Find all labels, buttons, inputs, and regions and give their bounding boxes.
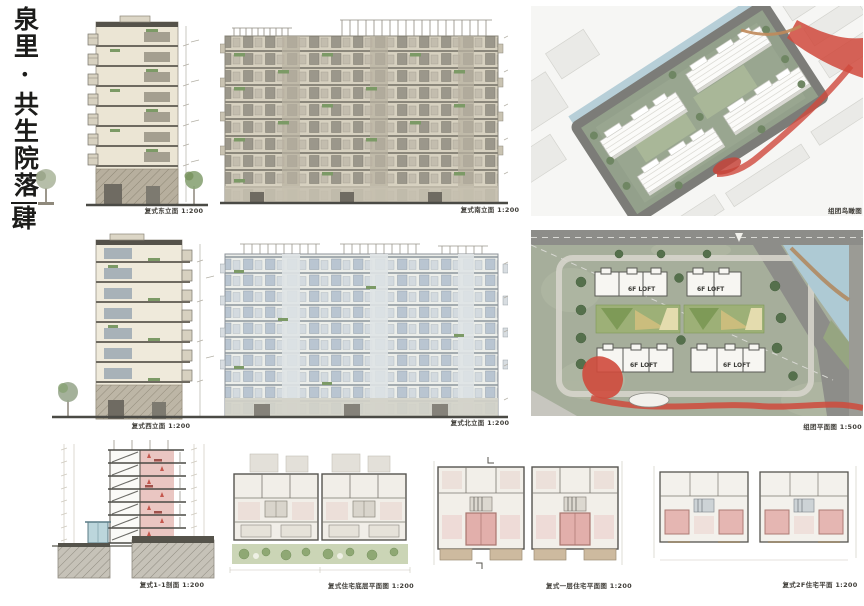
site-plan-panel: 6F LOFT 6F LOFT 6F LOFT 6F LOFT <box>531 230 863 416</box>
tree-icon <box>185 171 204 204</box>
plan-unit <box>438 467 524 560</box>
south-elevation-drawing <box>220 16 508 208</box>
roof-pergola <box>232 20 492 36</box>
plan-unit <box>760 472 848 542</box>
first-floor-plan-panel <box>430 455 626 577</box>
dimension-marks <box>230 567 410 573</box>
building-label: 6F LOFT <box>697 286 725 293</box>
ground-floor-plan-panel <box>228 452 412 578</box>
building-label: 6F LOFT <box>628 286 656 293</box>
second-floor-plan-drawing <box>648 462 862 572</box>
first-floor-plan-drawing <box>430 455 626 577</box>
building-facade <box>96 234 192 419</box>
foundation <box>52 536 214 578</box>
east-elevation-caption: 复式东立面 1:200 <box>114 205 234 215</box>
tree-icon <box>58 382 78 418</box>
roof-pergola <box>240 244 488 254</box>
site-plan-drawing: 6F LOFT 6F LOFT 6F LOFT 6F LOFT <box>531 230 863 416</box>
tree-icon <box>32 164 60 206</box>
birdseye-drawing <box>531 6 863 216</box>
board-title: 泉里·共生院落 肆 <box>6 6 42 246</box>
dimension-marks <box>504 36 508 174</box>
entrance-glass-box <box>85 522 111 543</box>
building-facade <box>220 254 508 417</box>
dimension-marks <box>197 244 214 416</box>
plan-unit <box>234 474 318 540</box>
section-caption: 复式1-1剖面 1:200 <box>112 579 232 589</box>
second-floor-plan-caption: 复式2F住宅平面 1:200 <box>760 579 864 589</box>
building-label: 6F LOFT <box>723 362 751 369</box>
west-elevation-drawing <box>52 232 220 424</box>
plan-unit <box>660 472 748 542</box>
north-elevation-panel <box>220 240 508 422</box>
presentation-board: 泉里·共生院落 肆 <box>0 0 864 606</box>
section-rooms <box>140 450 174 543</box>
building-facade <box>88 16 178 205</box>
building-facade <box>220 36 503 203</box>
birdseye-panel <box>531 6 863 216</box>
south-elevation-panel <box>220 16 508 208</box>
first-floor-plan-caption: 复式一层住宅平面图 1:200 <box>529 580 649 590</box>
courtyard-gardens <box>596 305 764 333</box>
second-floor-plan-panel <box>648 462 862 572</box>
garden-band <box>232 544 408 564</box>
section-drawing <box>52 438 224 584</box>
east-elevation-panel <box>86 14 208 210</box>
birdseye-caption: 组团鸟瞰图 <box>778 205 862 215</box>
site-plan-caption: 组团平面图 1:500 <box>770 421 862 431</box>
plaza-oval <box>629 393 669 407</box>
west-elevation-panel <box>52 232 220 424</box>
ground-floor-plan-drawing <box>228 452 412 578</box>
board-title-number: 肆 <box>11 206 36 231</box>
tree-drawing <box>32 164 60 206</box>
north-elevation-caption: 复式北立面 1:200 <box>420 417 540 427</box>
north-elevation-drawing <box>220 240 508 422</box>
east-elevation-drawing <box>86 14 208 210</box>
section-stairs <box>110 450 140 543</box>
plan-unit <box>532 467 618 560</box>
ground-floor-plan-caption: 复式住宅底层平面图 1:200 <box>311 580 431 590</box>
building-label: 6F LOFT <box>630 362 658 369</box>
section-panel <box>52 438 224 584</box>
west-elevation-caption: 复式西立面 1:200 <box>101 420 221 430</box>
plan-unit <box>322 474 406 540</box>
